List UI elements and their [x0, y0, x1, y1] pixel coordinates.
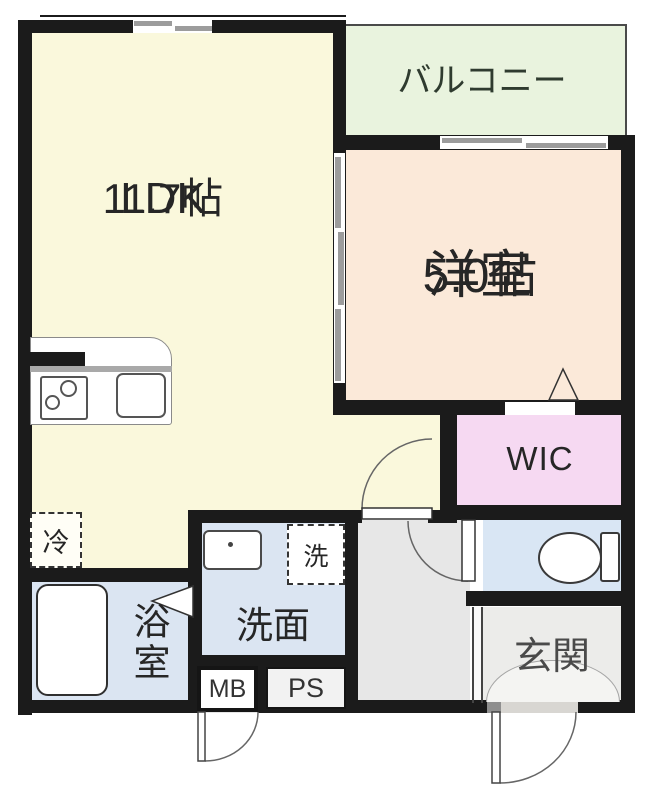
door-opening-entrance — [487, 701, 501, 713]
floor-plan: 冷 洗 MB PS LDK 11.7帖 バルコニー 洋室 5.0帖 WIC 洗面… — [0, 0, 650, 800]
sliding-door-panel — [335, 157, 341, 228]
room-hallway — [358, 520, 470, 702]
toilet-tank-icon — [600, 532, 620, 582]
entrance-door-leaf — [492, 712, 500, 783]
door-opening-entrance — [501, 701, 578, 713]
bathtub-icon — [36, 584, 108, 696]
window-pane — [175, 26, 212, 31]
washbasin-faucet-icon — [228, 542, 233, 547]
pipe-space-box: PS — [266, 667, 346, 709]
meter-box: MB — [197, 666, 258, 712]
wall-alcove-right — [440, 400, 457, 520]
wall-toilet-bottom — [466, 591, 635, 606]
ldk-size: 11.7帖 — [103, 176, 224, 222]
kitchen-partition — [30, 352, 85, 366]
wall-western-bottom — [333, 400, 635, 415]
toilet-bowl-icon — [538, 532, 602, 584]
wall-washroom-top — [190, 510, 362, 523]
entrance-door-arc — [500, 712, 576, 783]
washbasin-icon — [203, 530, 262, 570]
ldk-label: LDK 11.7帖 — [63, 143, 263, 255]
sliding-door-panel — [335, 309, 341, 381]
sliding-door-panel — [338, 232, 344, 305]
refrigerator-label: 冷 — [43, 521, 70, 560]
kitchen-counter-edge — [30, 366, 172, 372]
refrigerator-space: 冷 — [30, 512, 82, 568]
mb-door-arc — [205, 712, 258, 761]
kitchen-sink-icon — [116, 373, 166, 418]
wall-washroom-right — [345, 510, 358, 710]
wall-top-thin-line — [40, 15, 346, 17]
washer-label: 洗 — [303, 537, 328, 573]
washroom-label: 洗面 — [202, 598, 344, 646]
entrance-label: 玄関 — [482, 630, 622, 674]
room-ldk — [32, 33, 333, 510]
entrance-threshold-line — [472, 607, 474, 703]
window-pane — [526, 143, 606, 148]
western-room-size: 5.0帖 — [423, 249, 538, 304]
burner-icon — [60, 380, 77, 397]
wall-door-hinge — [428, 510, 457, 523]
door-opening-wic — [505, 402, 575, 415]
wall-wic-bottom — [440, 505, 635, 520]
room-ldk-alcove — [333, 415, 440, 510]
washer-space: 洗 — [287, 524, 345, 585]
western-room-label: 洋室 5.0帖 — [360, 207, 600, 347]
pipe-space-label: PS — [288, 673, 324, 704]
window-pane — [134, 21, 172, 26]
meter-box-label: MB — [209, 675, 247, 704]
burner-icon — [45, 395, 60, 410]
window-pane — [442, 138, 522, 143]
wall-right — [621, 137, 635, 713]
wic-label: WIC — [460, 438, 620, 480]
wall-bathroom-top — [18, 568, 200, 582]
mb-door-leaf — [198, 712, 205, 761]
bathroom-label: 浴室 — [128, 594, 168, 692]
balcony-label: バルコニー — [362, 55, 602, 99]
